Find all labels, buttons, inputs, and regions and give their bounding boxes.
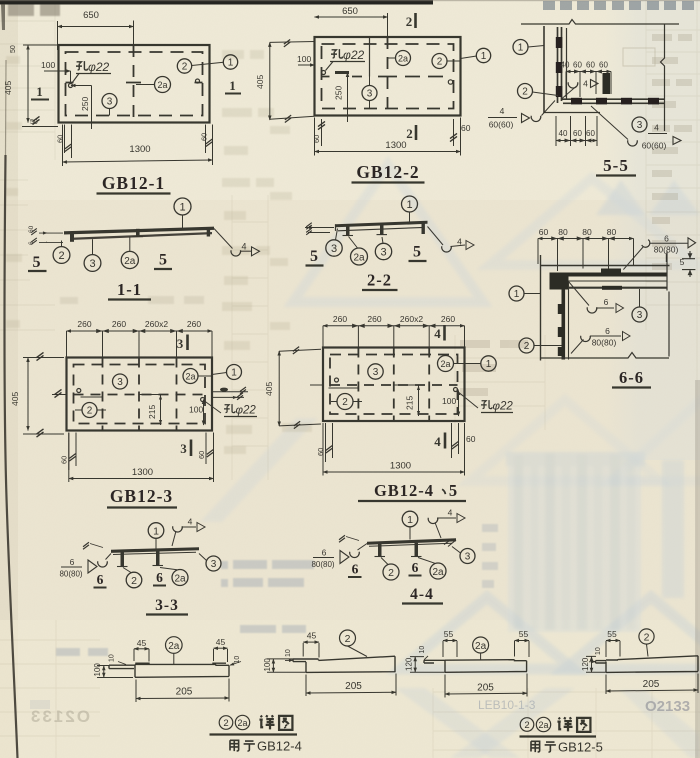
svg-text:2a: 2a (174, 574, 186, 585)
svg-text:60: 60 (316, 448, 325, 456)
svg-text:260: 260 (367, 314, 381, 324)
svg-text:2: 2 (58, 250, 64, 262)
svg-text:5: 5 (159, 252, 167, 269)
svg-text:φ22: φ22 (343, 48, 365, 62)
svg-text:3-3: 3-3 (155, 597, 179, 614)
svg-text:GB12-4: GB12-4 (374, 481, 434, 500)
svg-text:100: 100 (41, 60, 55, 70)
svg-text:2a: 2a (538, 720, 548, 730)
svg-text:2: 2 (406, 14, 413, 29)
svg-text:260: 260 (441, 314, 455, 324)
svg-text:1: 1 (518, 43, 524, 54)
svg-text:4: 4 (434, 326, 441, 341)
svg-text:3: 3 (211, 559, 217, 570)
svg-text:6: 6 (156, 570, 163, 585)
svg-text:3: 3 (107, 97, 113, 108)
svg-text:3: 3 (465, 552, 471, 563)
svg-text:4: 4 (448, 508, 453, 518)
svg-text:3: 3 (637, 120, 643, 131)
svg-text:2a: 2a (237, 718, 247, 728)
svg-text:1: 1 (229, 78, 236, 93)
svg-text:60: 60 (586, 61, 595, 70)
svg-text:φ22: φ22 (236, 405, 257, 417)
svg-text:3: 3 (177, 336, 184, 351)
svg-text:215: 215 (147, 405, 157, 419)
svg-text:1: 1 (179, 202, 185, 214)
svg-text:6-6: 6-6 (619, 368, 644, 387)
svg-text:5-5: 5-5 (603, 156, 629, 175)
svg-text:2: 2 (437, 57, 443, 68)
svg-text:55: 55 (519, 629, 529, 639)
svg-text:GB12-3: GB12-3 (110, 486, 173, 506)
svg-text:10: 10 (285, 649, 292, 657)
svg-text:1300: 1300 (129, 144, 150, 155)
svg-text:GB12-4: GB12-4 (257, 739, 302, 754)
svg-text:60: 60 (28, 225, 35, 233)
svg-text:260: 260 (77, 319, 91, 329)
svg-text:1-1: 1-1 (117, 280, 142, 299)
svg-text:GB12-5: GB12-5 (558, 740, 603, 755)
svg-text:80: 80 (558, 227, 568, 237)
svg-text:1: 1 (406, 199, 412, 211)
svg-text:260: 260 (187, 319, 201, 329)
svg-text:205: 205 (176, 687, 193, 698)
svg-text:3: 3 (380, 247, 386, 259)
svg-text:3: 3 (331, 243, 337, 255)
svg-text:60: 60 (197, 451, 206, 459)
svg-text:650: 650 (342, 6, 358, 17)
svg-text:80(80): 80(80) (592, 338, 617, 348)
svg-text:2a: 2a (157, 80, 167, 90)
svg-text:60: 60 (573, 129, 582, 138)
svg-text:GB12-1: GB12-1 (102, 173, 165, 193)
svg-text:4: 4 (434, 434, 441, 449)
svg-text:2: 2 (644, 632, 650, 644)
svg-text:100: 100 (263, 658, 272, 672)
svg-text:5: 5 (33, 254, 41, 271)
svg-text:60: 60 (586, 129, 595, 138)
svg-text:2a: 2a (432, 567, 444, 578)
svg-text:80: 80 (582, 227, 592, 237)
svg-text:60: 60 (466, 434, 476, 444)
svg-text:1: 1 (228, 58, 234, 69)
svg-text:3: 3 (367, 89, 373, 100)
svg-text:2: 2 (223, 718, 228, 729)
svg-text:60: 60 (200, 133, 209, 141)
svg-text:60: 60 (573, 61, 582, 70)
svg-text:2: 2 (524, 341, 530, 352)
svg-text:2a: 2a (353, 253, 365, 264)
svg-text:1300: 1300 (385, 140, 406, 151)
svg-text:2: 2 (406, 126, 413, 141)
svg-text:60(60): 60(60) (489, 120, 514, 130)
svg-text:1: 1 (486, 359, 492, 370)
svg-text:10: 10 (595, 647, 602, 655)
svg-text:3: 3 (89, 258, 95, 270)
svg-text:GB12-2: GB12-2 (356, 162, 419, 182)
svg-text:205: 205 (643, 679, 660, 690)
svg-text:10: 10 (109, 654, 116, 662)
svg-text:2-2: 2-2 (367, 271, 392, 290)
svg-text:1300: 1300 (132, 467, 153, 478)
svg-text:1300: 1300 (390, 461, 411, 472)
svg-text:1: 1 (231, 368, 237, 379)
svg-text:6: 6 (352, 562, 359, 577)
svg-text:60: 60 (56, 135, 65, 143)
svg-text:2a: 2a (185, 372, 195, 382)
svg-text:4: 4 (654, 123, 659, 133)
svg-text:80(80): 80(80) (59, 570, 82, 579)
svg-text:60(60): 60(60) (642, 141, 667, 151)
svg-text:260x2: 260x2 (145, 319, 168, 329)
svg-text:2a: 2a (168, 641, 180, 652)
svg-text:2a: 2a (440, 359, 450, 369)
svg-text:2: 2 (522, 87, 528, 98)
svg-text:2a: 2a (475, 641, 487, 652)
svg-text:2: 2 (524, 720, 529, 731)
svg-text:1: 1 (514, 289, 520, 300)
svg-text:60: 60 (60, 456, 69, 464)
svg-text:2: 2 (388, 567, 394, 579)
svg-text:405: 405 (3, 81, 13, 95)
svg-text:100: 100 (93, 663, 102, 677)
svg-text:260: 260 (333, 314, 347, 324)
svg-text:4: 4 (188, 517, 193, 527)
svg-text:405: 405 (255, 75, 265, 89)
svg-text:60: 60 (461, 123, 471, 133)
svg-text:120: 120 (405, 657, 414, 671)
svg-text:205: 205 (345, 681, 362, 692)
svg-text:405: 405 (264, 382, 274, 396)
svg-text:40: 40 (561, 61, 570, 70)
svg-text:6: 6 (412, 560, 419, 575)
svg-text:φ22: φ22 (493, 401, 514, 413)
svg-text:100: 100 (189, 405, 203, 415)
svg-text:3: 3 (637, 310, 643, 321)
svg-text:650: 650 (83, 10, 99, 21)
svg-text:10: 10 (419, 646, 426, 654)
svg-text:φ22: φ22 (88, 60, 110, 74)
svg-text:3: 3 (373, 367, 379, 378)
svg-text:5: 5 (310, 248, 318, 265)
svg-text:45: 45 (216, 637, 226, 647)
svg-text:5: 5 (413, 244, 421, 261)
svg-text:215: 215 (405, 396, 415, 410)
svg-text:2: 2 (342, 397, 348, 408)
svg-text:80: 80 (607, 227, 617, 237)
svg-text:2: 2 (87, 406, 93, 417)
svg-text:260x2: 260x2 (400, 314, 423, 324)
svg-text:120: 120 (581, 657, 590, 671)
svg-text:55: 55 (607, 629, 617, 639)
svg-text:2: 2 (131, 575, 137, 587)
svg-text:100: 100 (297, 54, 311, 64)
svg-text:45: 45 (137, 638, 147, 648)
svg-text:6: 6 (322, 548, 327, 558)
svg-text:6: 6 (70, 557, 75, 567)
svg-text:2: 2 (182, 62, 188, 73)
svg-text:40: 40 (559, 129, 568, 138)
svg-text:205: 205 (477, 683, 494, 694)
svg-text:3: 3 (117, 377, 123, 388)
svg-text:250: 250 (80, 97, 90, 111)
svg-text:60: 60 (539, 227, 549, 237)
svg-text:60: 60 (312, 135, 321, 143)
svg-text:2a: 2a (124, 256, 136, 267)
svg-text:55: 55 (444, 629, 454, 639)
svg-text:6: 6 (605, 326, 610, 336)
svg-text:1: 1 (36, 84, 43, 99)
svg-text:405: 405 (10, 392, 20, 406)
svg-text:6: 6 (664, 233, 669, 243)
svg-text:80(80): 80(80) (311, 560, 334, 569)
svg-text:6: 6 (97, 572, 104, 587)
svg-text:6: 6 (28, 241, 35, 245)
svg-text:80(80): 80(80) (654, 244, 679, 254)
svg-text:45: 45 (307, 631, 317, 641)
svg-text:50: 50 (10, 45, 17, 53)
svg-text:2: 2 (345, 633, 351, 645)
svg-text:2a: 2a (398, 54, 408, 64)
svg-text:3: 3 (180, 441, 187, 456)
svg-text:6: 6 (604, 297, 609, 307)
svg-text:1: 1 (481, 51, 487, 62)
svg-text:1: 1 (153, 526, 159, 538)
svg-text:60: 60 (599, 61, 608, 70)
svg-text:1: 1 (407, 514, 413, 526)
svg-text:250: 250 (334, 86, 344, 100)
svg-text:4: 4 (500, 106, 505, 116)
svg-text:5: 5 (449, 481, 457, 500)
svg-text:4-4: 4-4 (410, 586, 434, 603)
svg-text:4: 4 (241, 242, 246, 252)
svg-text:100: 100 (442, 396, 456, 406)
svg-text:4: 4 (583, 79, 588, 89)
svg-text:260: 260 (112, 319, 126, 329)
